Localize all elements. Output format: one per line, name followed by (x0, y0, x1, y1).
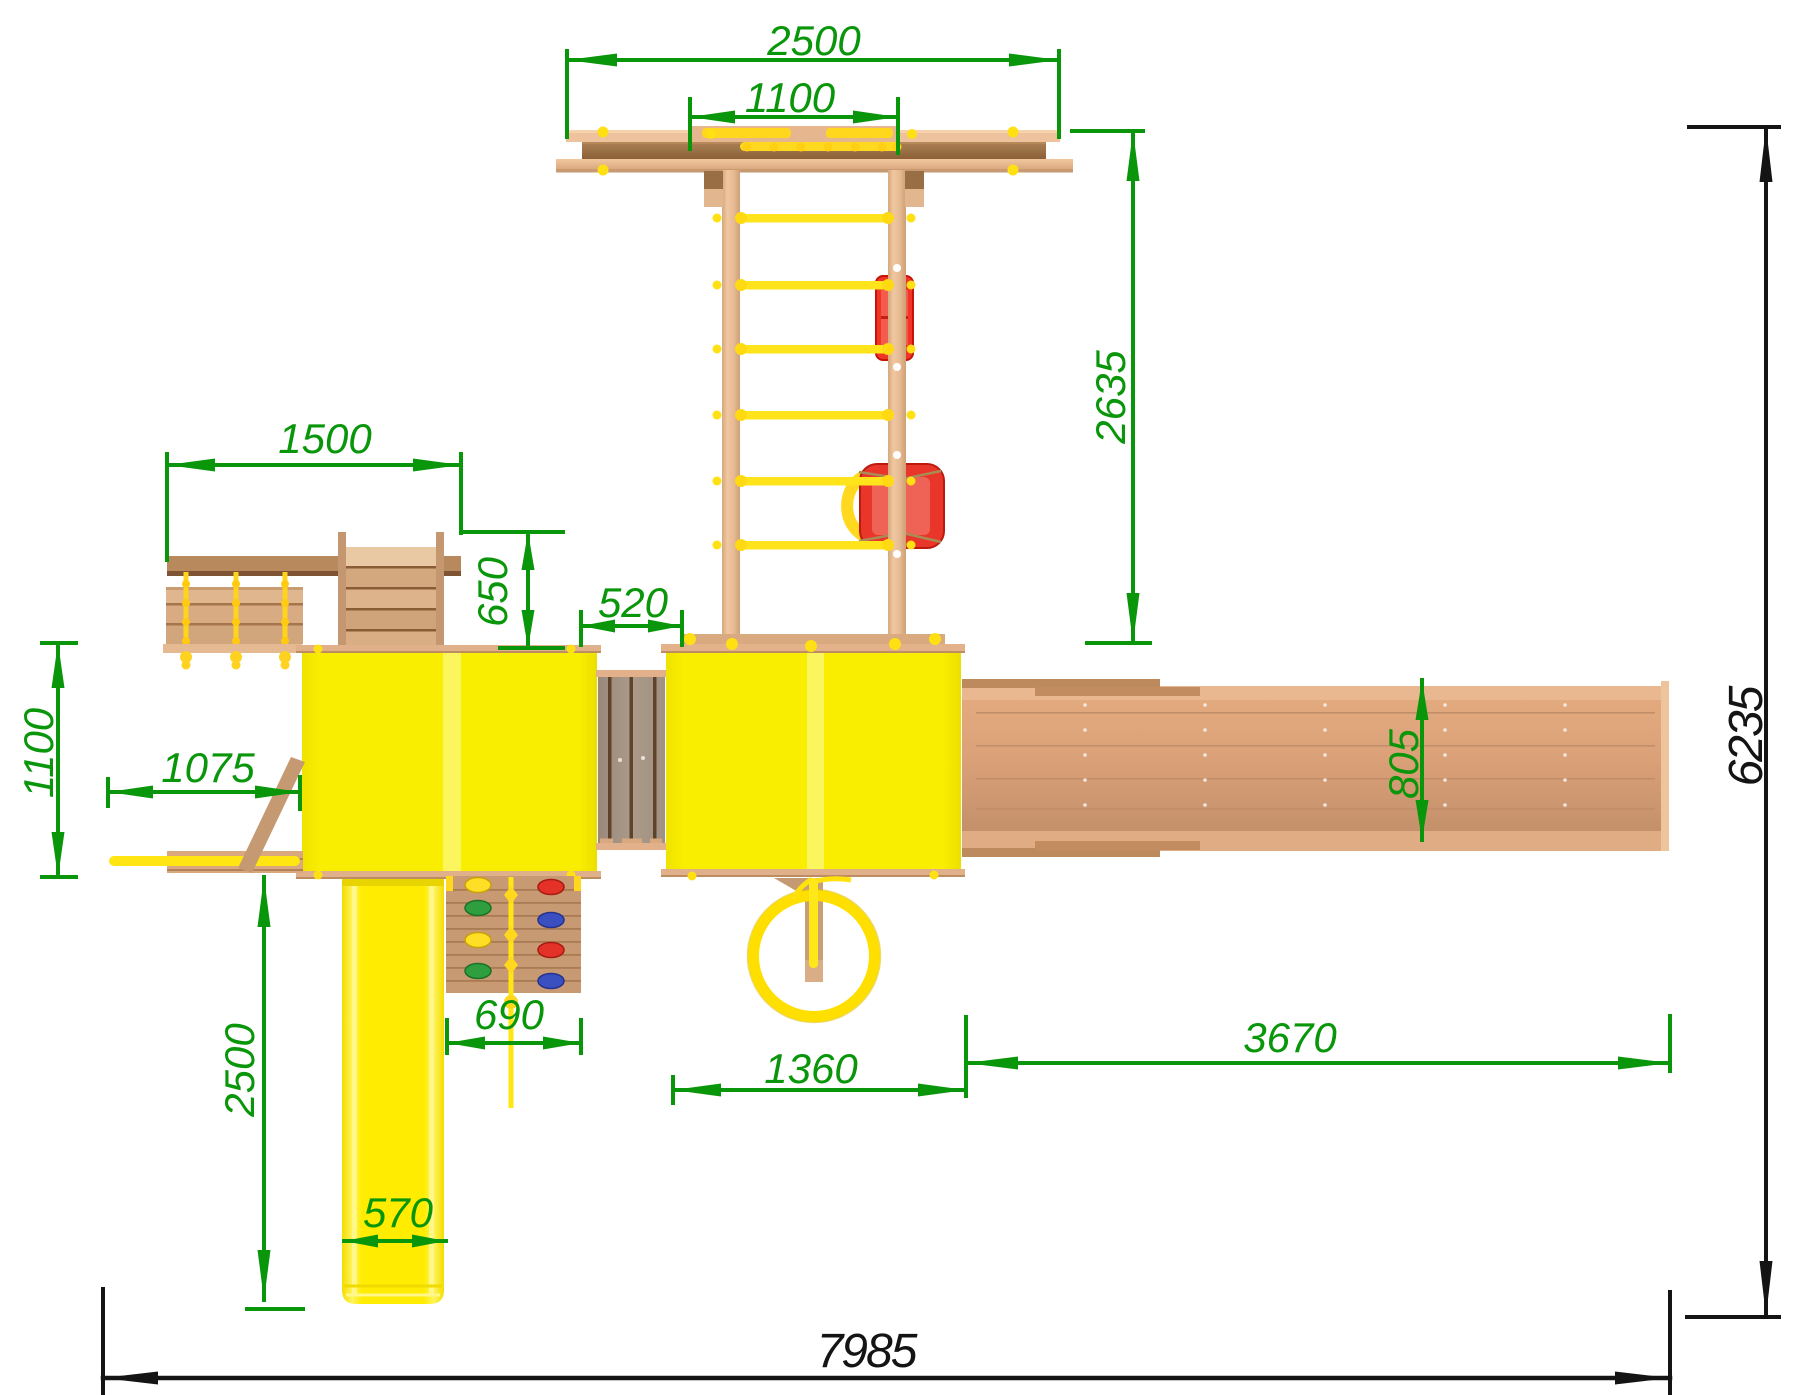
svg-text:2635: 2635 (1087, 350, 1134, 445)
svg-text:1075: 1075 (161, 744, 255, 791)
svg-text:650: 650 (469, 556, 516, 627)
svg-text:690: 690 (474, 991, 545, 1038)
svg-text:520: 520 (598, 579, 669, 626)
svg-text:1360: 1360 (764, 1045, 858, 1092)
svg-text:3670: 3670 (1243, 1014, 1337, 1061)
svg-text:6235: 6235 (1720, 685, 1773, 786)
svg-text:1500: 1500 (278, 415, 372, 462)
svg-text:2500: 2500 (216, 1023, 263, 1118)
svg-text:2500: 2500 (766, 17, 861, 64)
svg-text:1100: 1100 (15, 707, 62, 798)
svg-text:7985: 7985 (817, 1325, 918, 1378)
svg-text:570: 570 (363, 1189, 434, 1236)
svg-text:1100: 1100 (745, 74, 836, 121)
svg-text:805: 805 (1380, 728, 1427, 799)
